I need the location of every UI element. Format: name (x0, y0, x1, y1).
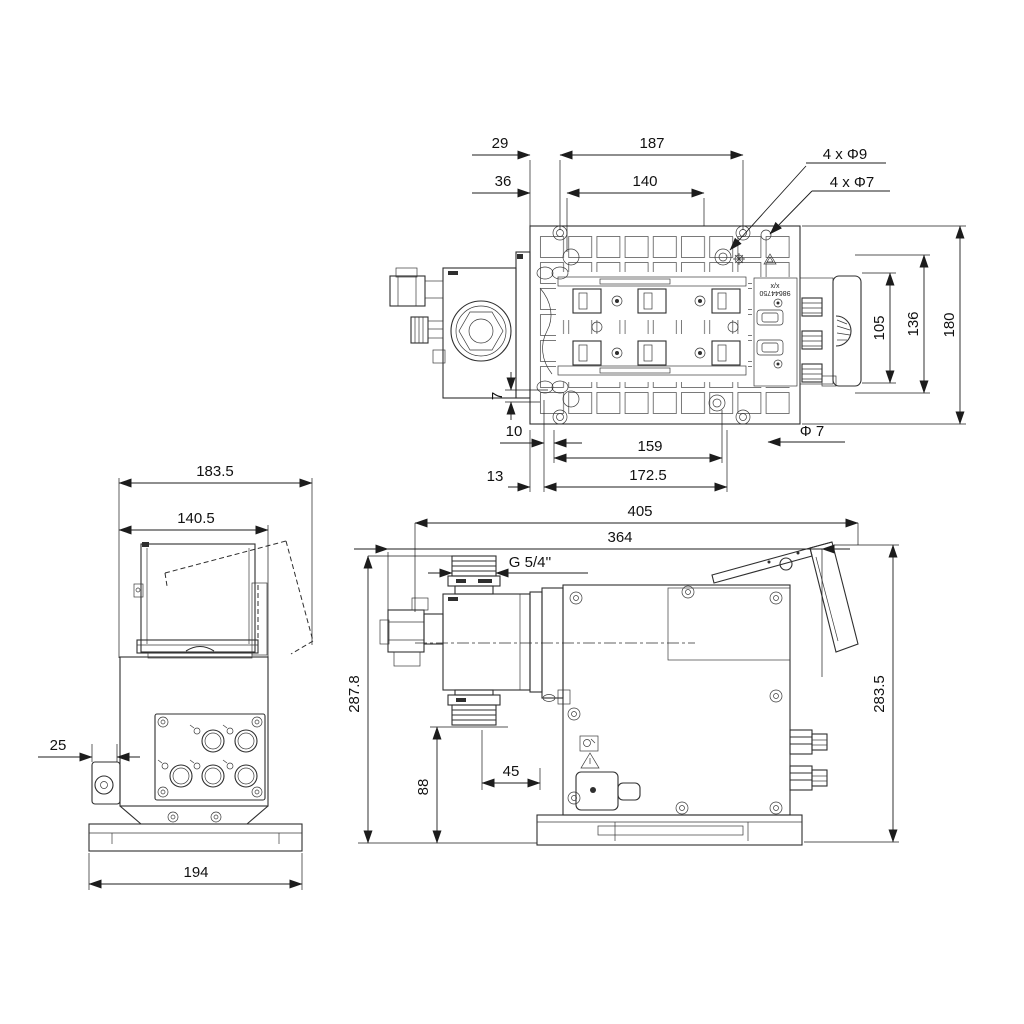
phi7-label: Φ 7 (800, 423, 824, 440)
baseplate: x/x 98644750 (530, 226, 800, 424)
dim-136-label: 136 (905, 311, 922, 336)
dim-36-label: 36 (495, 173, 512, 190)
dim-159-label: 159 (637, 438, 662, 455)
thread-label: G 5/4'' (509, 554, 552, 571)
dim-183-5-label: 183.5 (196, 463, 234, 480)
dim-287-8-label: 287.8 (346, 675, 363, 713)
dim-29-label: 29 (492, 135, 509, 152)
dim-364-label: 364 (607, 529, 632, 546)
dim-45-label: 45 (503, 763, 520, 780)
dim-283-5-label: 283.5 (871, 675, 888, 713)
dim-13-label: 13 (487, 468, 504, 485)
dim-194-label: 194 (183, 864, 208, 881)
dim-140-5-label: 140.5 (177, 510, 215, 527)
dim-7-label: 7 (489, 392, 506, 400)
dim-140-label: 140 (632, 173, 657, 190)
dim-10-label: 10 (506, 423, 523, 440)
dim-88-label: 88 (415, 779, 432, 796)
page-background (0, 0, 1024, 1024)
technical-drawing-page: x/x 98644750 (0, 0, 1024, 1024)
dim-105-label: 105 (871, 315, 888, 340)
leader-phi9-label: 4 x Φ9 (823, 146, 868, 163)
dim-187-label: 187 (639, 135, 664, 152)
panel-xx-label: x/x (771, 283, 780, 290)
leader-phi7-label: 4 x Φ7 (830, 174, 875, 191)
dim-172-5-label: 172.5 (629, 467, 667, 484)
dim-405-label: 405 (627, 503, 652, 520)
panel-part-number: 98644750 (759, 289, 790, 296)
dim-25-label: 25 (50, 737, 67, 754)
drawing-canvas: x/x 98644750 (0, 0, 1024, 1024)
dim-180-label: 180 (941, 312, 958, 337)
